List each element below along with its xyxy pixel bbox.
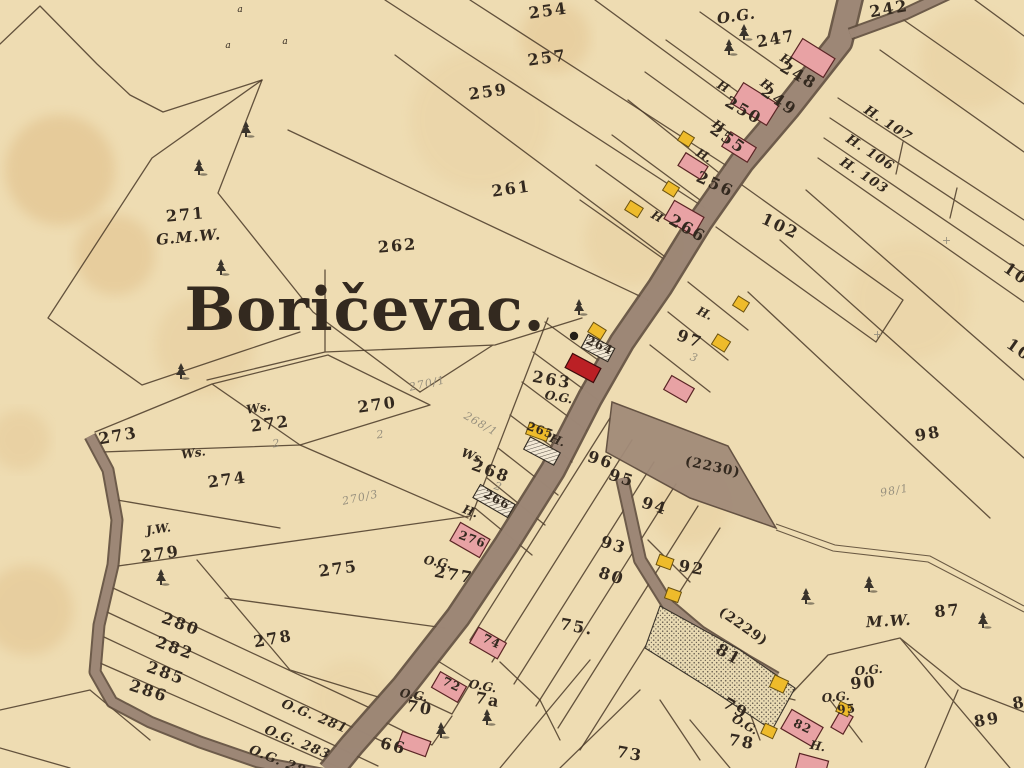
pencil-annotation: 2 bbox=[375, 428, 386, 442]
map-viewport: Boričevac. bbox=[0, 0, 1024, 768]
cadastral-map: Boričevac. bbox=[0, 0, 1024, 768]
survey-dot bbox=[570, 332, 578, 340]
parcel-number-label: 271 bbox=[165, 203, 206, 225]
pencil-annotation: 2 bbox=[271, 437, 282, 451]
paper-stain bbox=[410, 50, 550, 190]
terrain-glyph: a bbox=[282, 37, 287, 47]
terrain-glyph: a bbox=[237, 5, 242, 15]
parcel-number-label: 90 bbox=[850, 672, 878, 693]
abbreviation-label: M.W. bbox=[865, 611, 912, 631]
paper-stain bbox=[5, 115, 115, 225]
parcel-number-label: 95 bbox=[837, 701, 857, 717]
parcel-number-label: 87 bbox=[934, 600, 962, 621]
markers-layer bbox=[570, 332, 578, 340]
pencil-annotation: + bbox=[942, 234, 952, 247]
parcel-number-label: 8 bbox=[1011, 692, 1024, 713]
terrain-glyph: a bbox=[225, 41, 230, 51]
parcel-number-label: 262 bbox=[377, 234, 418, 256]
village-name: Boričevac. bbox=[184, 275, 545, 345]
paper-stain bbox=[850, 240, 970, 360]
pencil-annotation: + bbox=[873, 328, 883, 341]
paper-stain bbox=[920, 10, 1020, 110]
paper-stain bbox=[75, 215, 155, 295]
abbreviation-label: H. bbox=[808, 738, 827, 755]
